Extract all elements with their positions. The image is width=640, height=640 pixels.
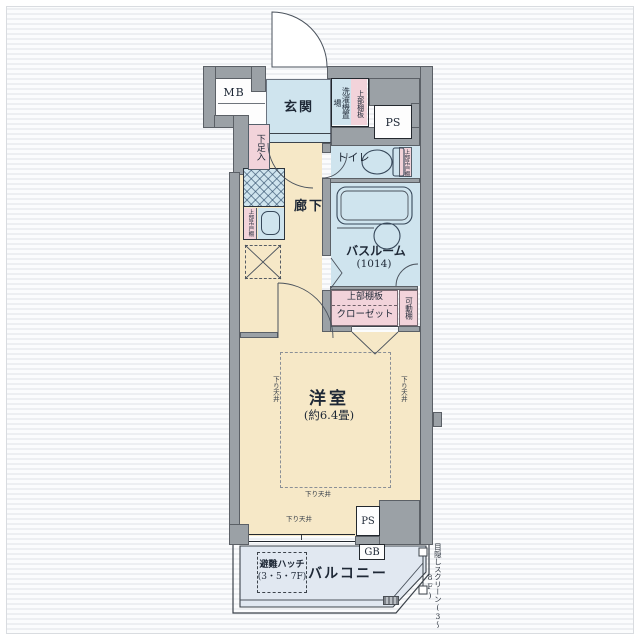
ps-bottom-box: PS (356, 506, 380, 536)
ceiling-label-left: 下り天井 (270, 371, 280, 407)
wall-toilet-bath (330, 178, 420, 183)
sink-icon (261, 211, 280, 235)
hatch-label: 避難ハッチ (256, 560, 308, 571)
wall-wet-seg1 (322, 143, 331, 153)
balcony-window (249, 534, 355, 542)
washer-label: 洗濯機置場 (332, 84, 350, 122)
fridge-space (245, 245, 281, 279)
wall-right (420, 66, 433, 545)
wall-left (229, 172, 240, 545)
sink-counter (258, 208, 284, 239)
wall-left-upper (233, 115, 249, 175)
closet-shelf-label: 上部棚板 (336, 291, 394, 303)
wall-wet-seg2 (322, 178, 331, 256)
toilet-label: トイレ (334, 152, 372, 165)
shoe-box-label: 下足入 (252, 130, 266, 164)
closet-label: クローゼット (333, 309, 397, 321)
bath-label: バスルーム (336, 245, 416, 258)
floor-plan: PS PS GB MB 玄関 洗濯機置場 上部棚板 下足入 トイレ 上部吊戸棚 … (0, 0, 640, 640)
hatch-floors-label: (3・5・7F) (256, 572, 308, 583)
room-label: 洋室 (295, 390, 363, 409)
wall-hall-room (240, 332, 278, 338)
hall-label: 廊下 (288, 200, 330, 215)
washer-shelf-label: 上部棚板 (354, 87, 366, 120)
wall-above-ps (369, 78, 420, 106)
ps-top-box: PS (374, 105, 412, 139)
gb-label: GB (364, 547, 379, 558)
ps-bottom-label: PS (361, 516, 375, 527)
ceiling-label-window: 下り天井 (281, 515, 317, 524)
wall-mb-stub (251, 66, 266, 92)
gb-box: GB (359, 544, 385, 560)
ceiling-label-bottom: 下り天井 (300, 490, 336, 499)
wall-wet-seg3 (322, 290, 331, 332)
wall-right-step (433, 412, 442, 427)
stove-icon (244, 169, 284, 207)
wall-bottom-left-pillar (229, 524, 249, 545)
balcony-label: バルコニー (300, 566, 396, 583)
wall-bottom-right-block (379, 500, 420, 545)
screen-note-label: 目隠しスクリーン(3〜8F) (427, 534, 440, 638)
genkan-step-line (266, 133, 331, 134)
room-size-label: (約6.4畳) (289, 409, 369, 423)
ceiling-label-right: 下り天井 (398, 371, 408, 407)
balcony-drain-grate (383, 596, 399, 605)
kitchen-shelf-label: 上部吊戸棚 (244, 208, 255, 238)
wall-bath-closet (330, 286, 418, 290)
mb-label: MB (216, 86, 252, 100)
wall-closet-bottom-left (330, 326, 352, 332)
genkan-label: 玄関 (272, 100, 326, 116)
entrance-door-arc (272, 12, 327, 67)
window-mullion (301, 535, 302, 540)
toilet-shelf-label: 上部吊戸棚 (400, 148, 411, 177)
ps-top-label: PS (386, 116, 401, 129)
bath-floor (331, 183, 420, 286)
movable-shelf-label: 可動棚 (402, 292, 415, 324)
wall-closet-bottom-right (398, 326, 420, 332)
closet-front-line (352, 326, 398, 327)
mb-underline (218, 103, 265, 104)
bath-size-label: (1014) (344, 258, 404, 270)
